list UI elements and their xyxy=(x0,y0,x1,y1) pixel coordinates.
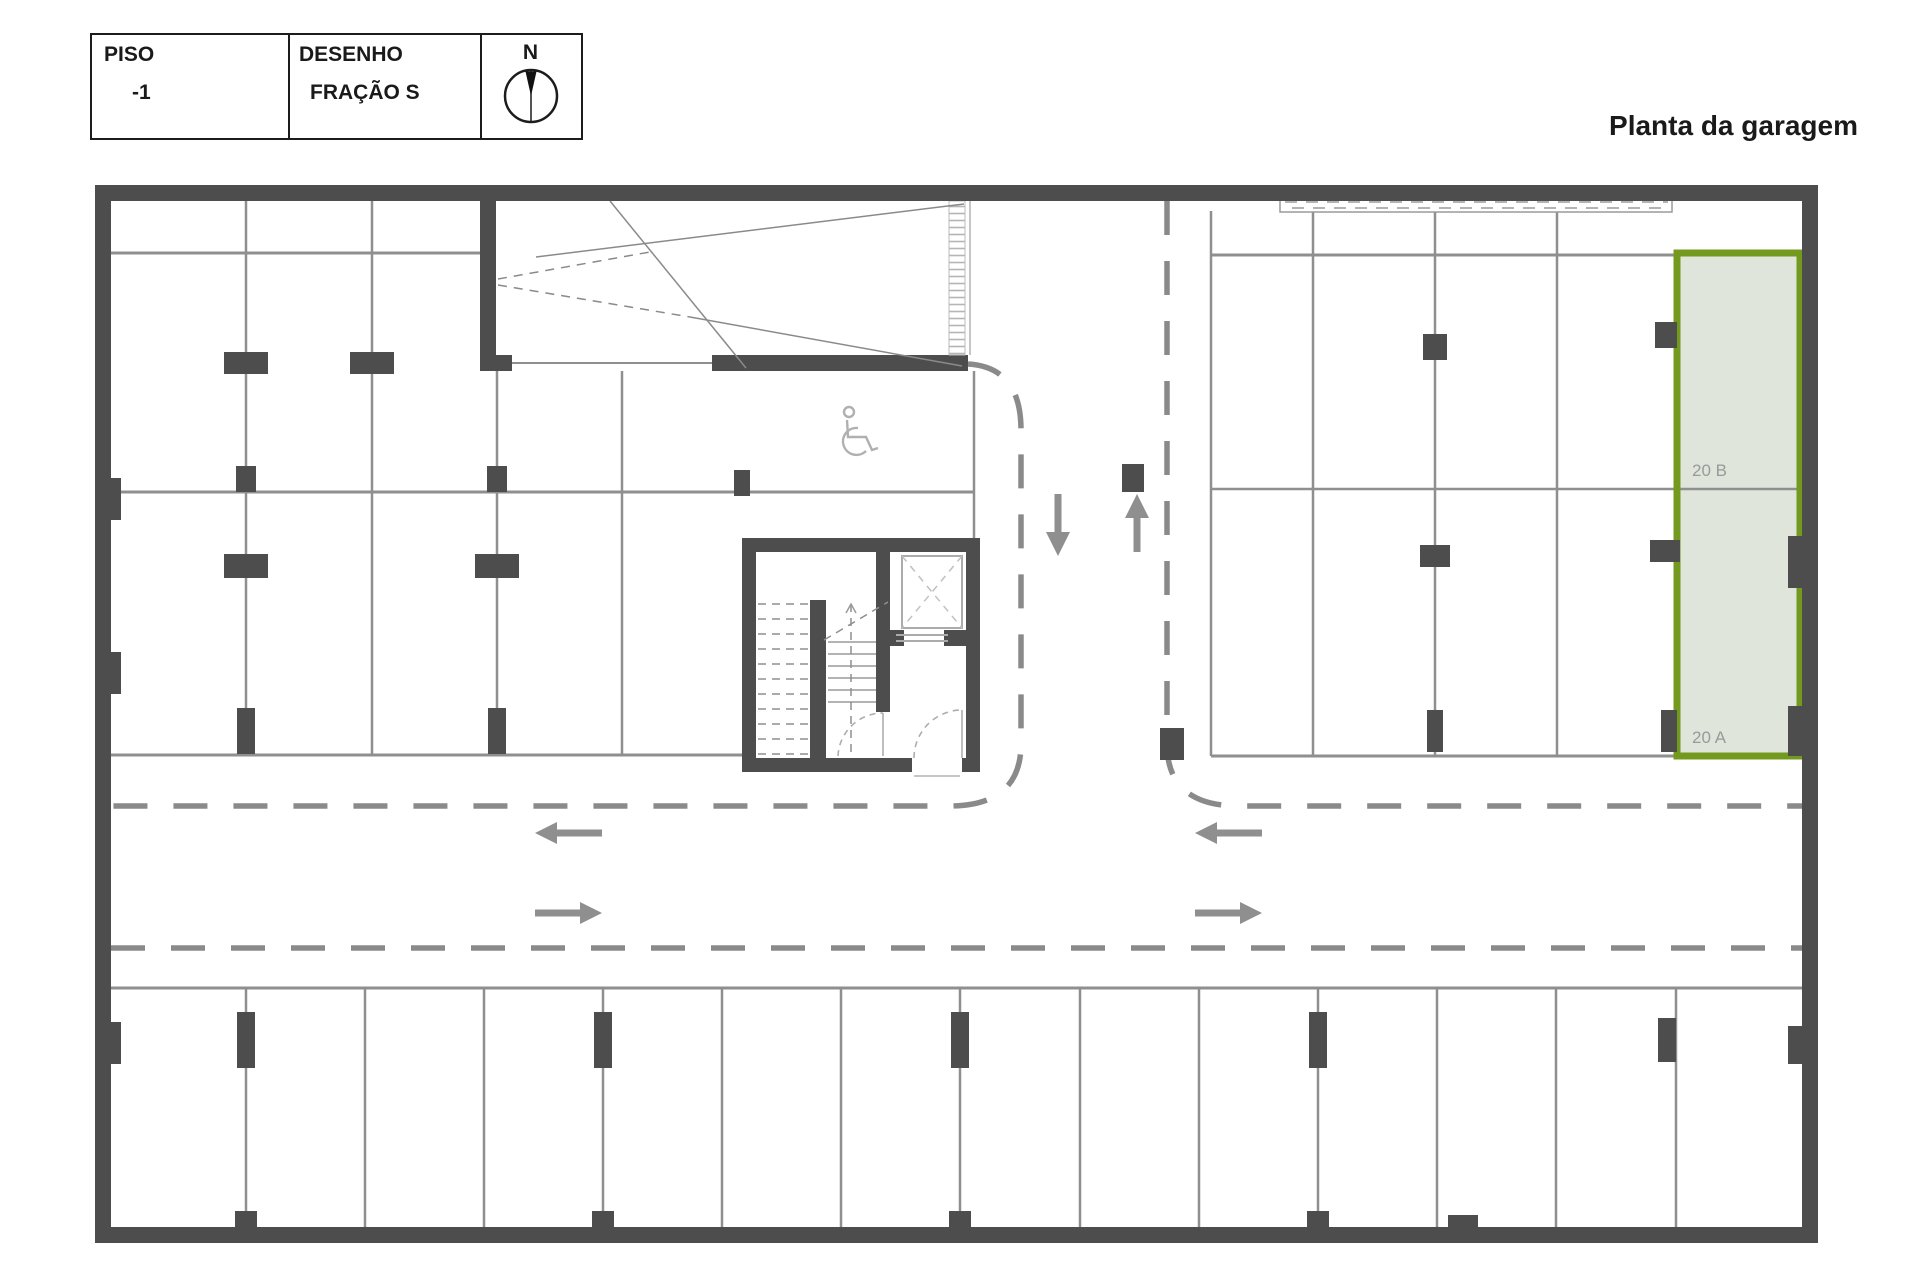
wheelchair-icon xyxy=(843,407,878,455)
lane-arrows xyxy=(535,494,1262,924)
elevator xyxy=(896,556,962,641)
ramp-room xyxy=(480,201,970,371)
arrow-down-ramp xyxy=(1046,494,1070,556)
space-label-20b[interactable]: 20 B xyxy=(1692,461,1727,480)
ramp-hatch-strip xyxy=(949,201,965,355)
arrow-right-east xyxy=(1195,902,1262,924)
arrow-left-west xyxy=(535,822,602,844)
stairwell xyxy=(742,538,980,776)
arrow-right-west xyxy=(535,902,602,924)
arrow-left-east xyxy=(1195,822,1262,844)
floor-plan-svg: 20 B 20 A xyxy=(0,0,1920,1280)
door-arc-stairs xyxy=(838,713,883,756)
arrow-up-ramp xyxy=(1125,494,1149,552)
garage-plan-page: PISO -1 DESENHO FRAÇÃO S N Planta da gar… xyxy=(0,0,1920,1280)
highlighted-unit-20: 20 B 20 A xyxy=(1677,253,1800,756)
space-label-20a[interactable]: 20 A xyxy=(1692,728,1727,747)
door-arc-lobby xyxy=(914,710,962,758)
